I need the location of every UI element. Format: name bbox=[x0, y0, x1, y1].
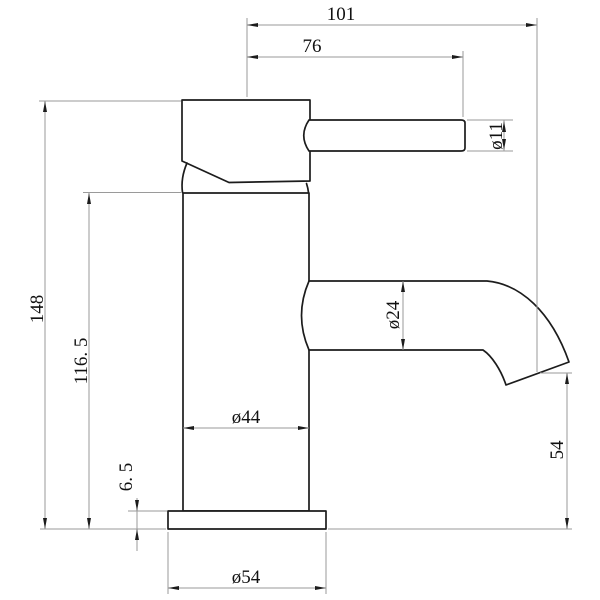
collar-right-edge bbox=[307, 184, 309, 193]
arrowhead bbox=[87, 518, 91, 529]
spout bbox=[302, 281, 570, 385]
arrowhead bbox=[247, 55, 258, 59]
arrowhead bbox=[565, 518, 569, 529]
label-overall-height: 148 bbox=[27, 295, 48, 324]
label-base-thickness: 6. 5 bbox=[116, 463, 137, 492]
label-handle-reach: 76 bbox=[303, 36, 322, 57]
label-body-diameter: ø44 bbox=[232, 407, 261, 428]
label-spout-reach: 101 bbox=[327, 4, 356, 25]
label-handle-diameter: ø11 bbox=[486, 122, 507, 150]
label-body-height: 116. 5 bbox=[71, 338, 92, 385]
arrowhead bbox=[135, 529, 139, 540]
arrowhead bbox=[247, 23, 258, 27]
collar-left-curve bbox=[182, 163, 187, 193]
handle-head bbox=[182, 100, 310, 183]
base-flange bbox=[168, 511, 326, 529]
faucet-body bbox=[183, 193, 309, 511]
arrowhead bbox=[526, 23, 537, 27]
arrowhead bbox=[452, 55, 463, 59]
arrowhead bbox=[168, 586, 179, 590]
arrowhead bbox=[43, 518, 47, 529]
arrowhead bbox=[87, 193, 91, 204]
label-outlet-height: 54 bbox=[547, 440, 568, 460]
faucet-dimension-diagram: 101 76 ø11 148 116. 5 ø24 ø44 6. 5 54 ø5… bbox=[0, 0, 600, 600]
arrowhead bbox=[315, 586, 326, 590]
arrowhead bbox=[565, 373, 569, 384]
handle-lever bbox=[304, 120, 465, 151]
technical-drawing-canvas: 101 76 ø11 148 116. 5 ø24 ø44 6. 5 54 ø5… bbox=[0, 0, 600, 600]
arrowhead bbox=[43, 101, 47, 112]
arrowhead bbox=[135, 500, 139, 511]
label-spout-diameter: ø24 bbox=[383, 300, 404, 329]
faucet-outline bbox=[168, 100, 569, 529]
label-base-diameter: ø54 bbox=[232, 567, 261, 588]
